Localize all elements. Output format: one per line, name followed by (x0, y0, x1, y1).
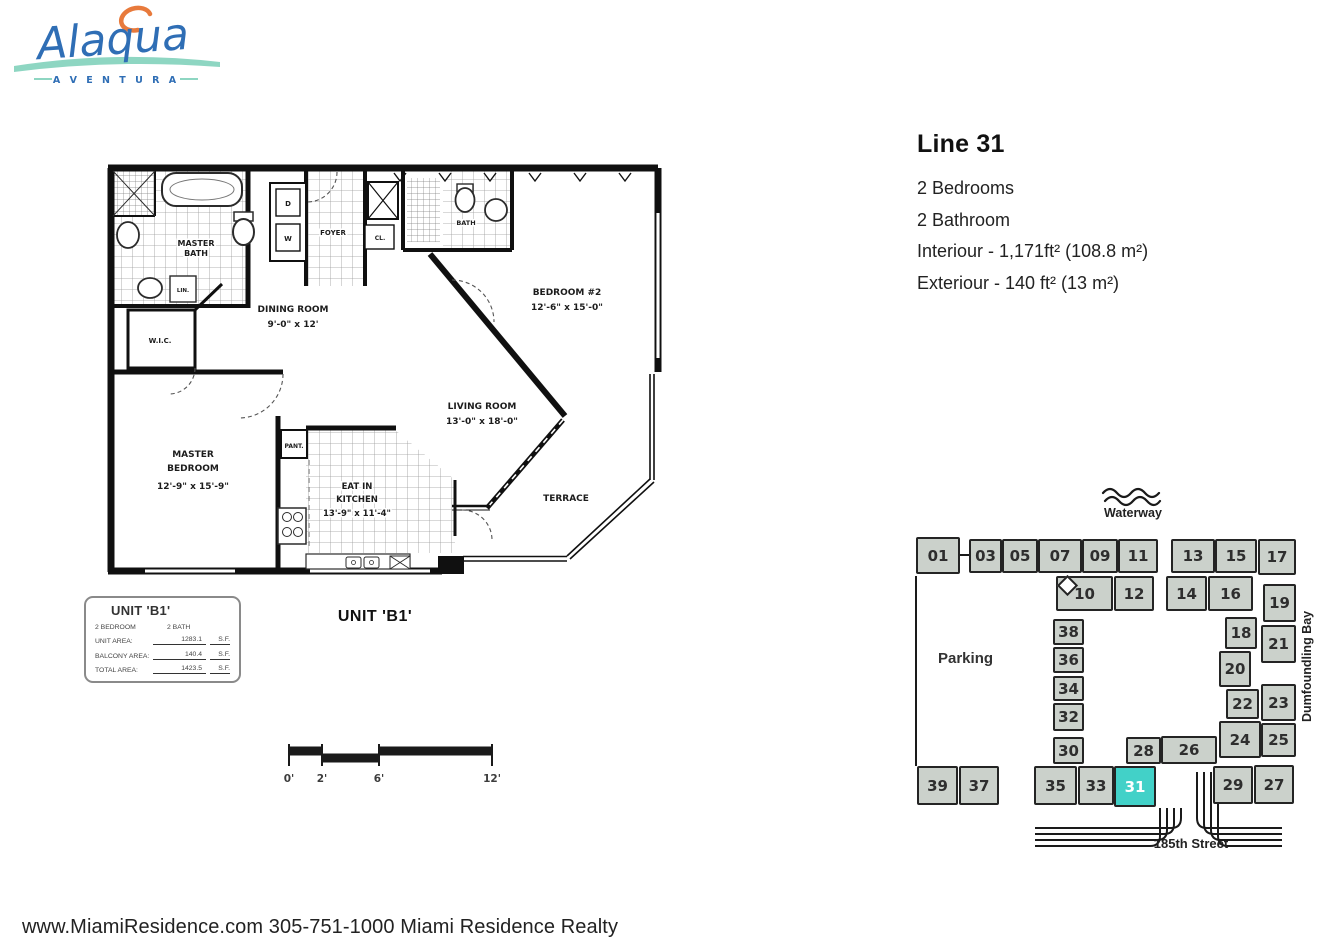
floorplan-drawing: MASTER BATH W.I.C. LIN. D W FOYER CL. BA… (100, 158, 675, 598)
label-dryer: D (285, 200, 291, 208)
info-interior: Interiour - 1,171ft² (108.8 m²) (917, 236, 1257, 268)
legend-value: 1423.5 (153, 665, 206, 674)
label-dining-name: DINING ROOM (258, 305, 329, 315)
label-bedroom2-name: BEDROOM #2 (533, 288, 602, 298)
street-curves (1035, 772, 1282, 846)
scale-label-0: 0' (284, 773, 295, 785)
legend-unit: S.F. (210, 665, 230, 674)
legend-row-total-area: TOTAL AREA: 1423.5 S.F. (95, 665, 230, 674)
info-bedrooms: 2 Bedrooms (917, 173, 1257, 205)
legend-label: UNIT AREA: (95, 638, 153, 645)
label-bath2: BATH (456, 219, 475, 227)
bay-label: Dumfoundling Bay (1300, 604, 1314, 722)
label-bedroom2-dims: 12'-6" x 15'-0" (531, 303, 603, 313)
legend-label: BALCONY AREA: (95, 653, 153, 660)
line-title: Line 31 (917, 130, 1257, 159)
label-cl: CL. (375, 235, 386, 242)
label-washer: W (284, 235, 292, 243)
label-living-dims: 13'-0" x 18'-0" (446, 417, 518, 427)
unit-line-info: Line 31 2 Bedrooms 2 Bathroom Interiour … (917, 130, 1257, 299)
legend-title: UNIT 'B1' (111, 603, 230, 618)
scale-bar: 0' 2' 6' 12' (278, 738, 513, 788)
plan-title: UNIT 'B1' (290, 608, 460, 626)
legend-unit: S.F. (210, 636, 230, 645)
footer-contact: www.MiamiResidence.com 305-751-1000 Miam… (22, 916, 618, 939)
scale-label-12: 12' (483, 773, 501, 785)
legend-unit: S.F. (210, 651, 230, 660)
label-master-bath-2: BATH (184, 249, 208, 258)
label-kitchen-dims: 13'-9" x 11'-4" (323, 509, 391, 519)
flyer-page: Alaqua A V E N T U R A Line 31 2 Bedroom… (0, 0, 1327, 945)
street-label: 185th Street (1146, 836, 1236, 851)
label-lin: LIN. (177, 288, 189, 294)
label-living-name: LIVING ROOM (448, 402, 517, 412)
label-terrace: TERRACE (543, 494, 589, 504)
scale-label-2: 2' (317, 773, 328, 785)
alaqua-logo: Alaqua A V E N T U R A (6, 2, 236, 97)
parking-label: Parking (938, 650, 993, 667)
legend-label: TOTAL AREA: (95, 667, 153, 674)
label-master-bath-1: MASTER (178, 239, 215, 248)
terrace-corner-post (438, 556, 464, 574)
label-foyer: FOYER (320, 229, 346, 237)
waterway-icon (1103, 489, 1160, 505)
legend-row-unit-area: UNIT AREA: 1283.1 S.F. (95, 636, 230, 645)
info-bathrooms: 2 Bathroom (917, 205, 1257, 237)
info-exterior: Exteriour - 140 ft² (13 m²) (917, 268, 1257, 300)
label-wic: W.I.C. (149, 337, 172, 345)
scale-label-6: 6' (374, 773, 385, 785)
legend-bed-bath-row: 2 BEDROOM 2 BATH (95, 624, 230, 631)
label-dining-dims: 9'-0" x 12' (267, 320, 318, 330)
legend-value: 1283.1 (153, 636, 206, 645)
legend-bedroom: 2 BEDROOM (95, 624, 167, 631)
logo-subtitle: A V E N T U R A (53, 75, 179, 86)
waterway-label: Waterway (1093, 506, 1173, 520)
unit-legend-box: UNIT 'B1' 2 BEDROOM 2 BATH UNIT AREA: 12… (84, 596, 241, 683)
label-master-name2: BEDROOM (167, 464, 219, 474)
label-master-dims: 12'-9" x 15'-9" (157, 482, 229, 492)
label-kitchen-name2: KITCHEN (336, 495, 378, 505)
label-kitchen-name1: EAT IN (342, 482, 373, 492)
legend-row-balcony-area: BALCONY AREA: 140.4 S.F. (95, 651, 230, 660)
logo-wordmark: Alaqua (32, 9, 190, 71)
label-master-name1: MASTER (172, 450, 214, 460)
legend-value: 140.4 (153, 651, 206, 660)
sitemap-decorations (900, 480, 1327, 870)
legend-bath: 2 BATH (167, 624, 230, 631)
label-pantry: PANT. (285, 443, 304, 450)
